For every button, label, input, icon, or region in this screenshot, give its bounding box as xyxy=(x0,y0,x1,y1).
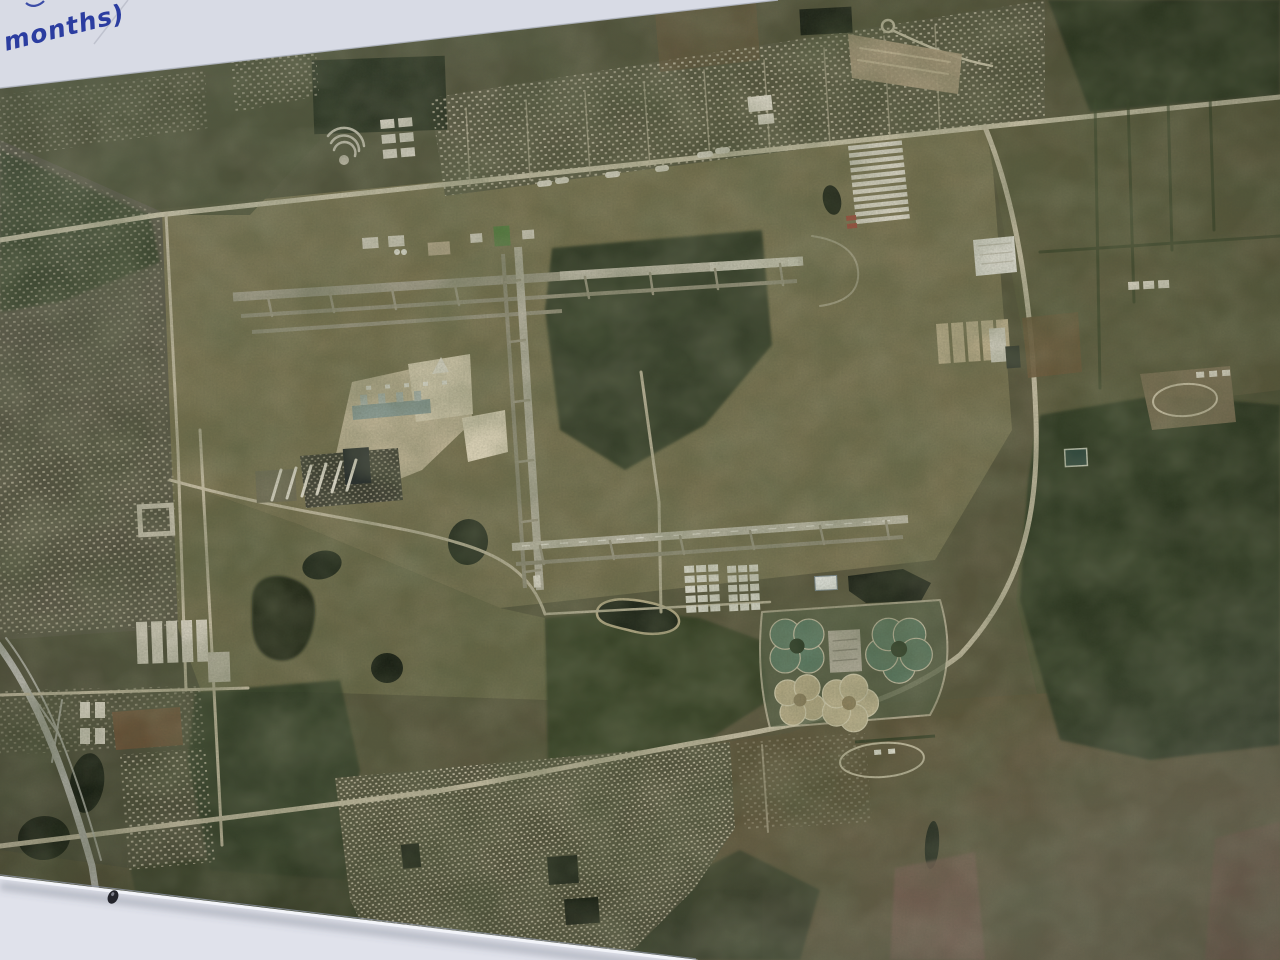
photo-of-wall-mounted-satellite-map: months) xyxy=(0,0,1280,960)
photo-glare xyxy=(0,0,1280,960)
scene-canvas: months) xyxy=(0,0,1280,960)
satellite-map-photo xyxy=(0,0,1280,960)
